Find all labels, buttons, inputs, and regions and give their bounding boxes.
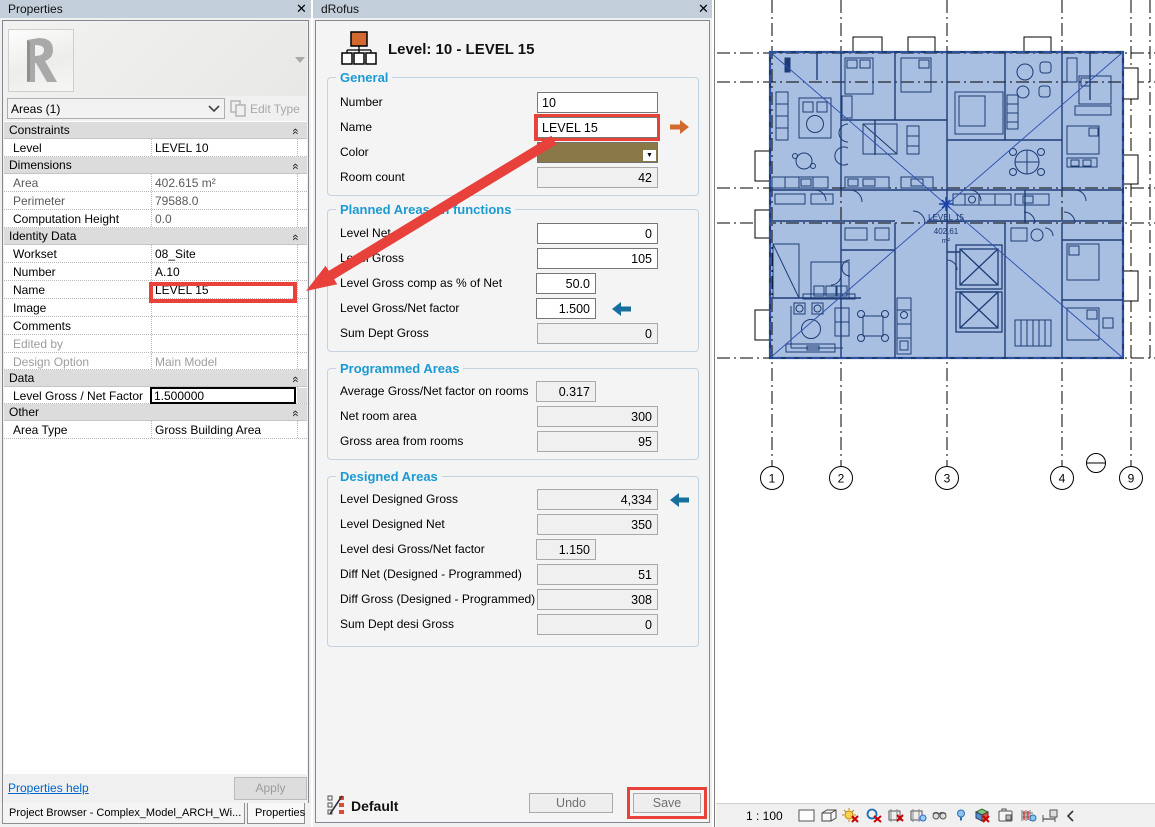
svg-text:9: 9 bbox=[1128, 472, 1135, 486]
svg-text:2: 2 bbox=[838, 472, 845, 486]
svg-text:402.61: 402.61 bbox=[934, 227, 959, 236]
svg-text:4: 4 bbox=[1059, 472, 1066, 486]
svg-text:LEVEL 15: LEVEL 15 bbox=[928, 213, 964, 222]
svg-text:m²: m² bbox=[942, 238, 951, 245]
svg-text:3: 3 bbox=[944, 472, 951, 486]
svg-text:1: 1 bbox=[769, 472, 776, 486]
